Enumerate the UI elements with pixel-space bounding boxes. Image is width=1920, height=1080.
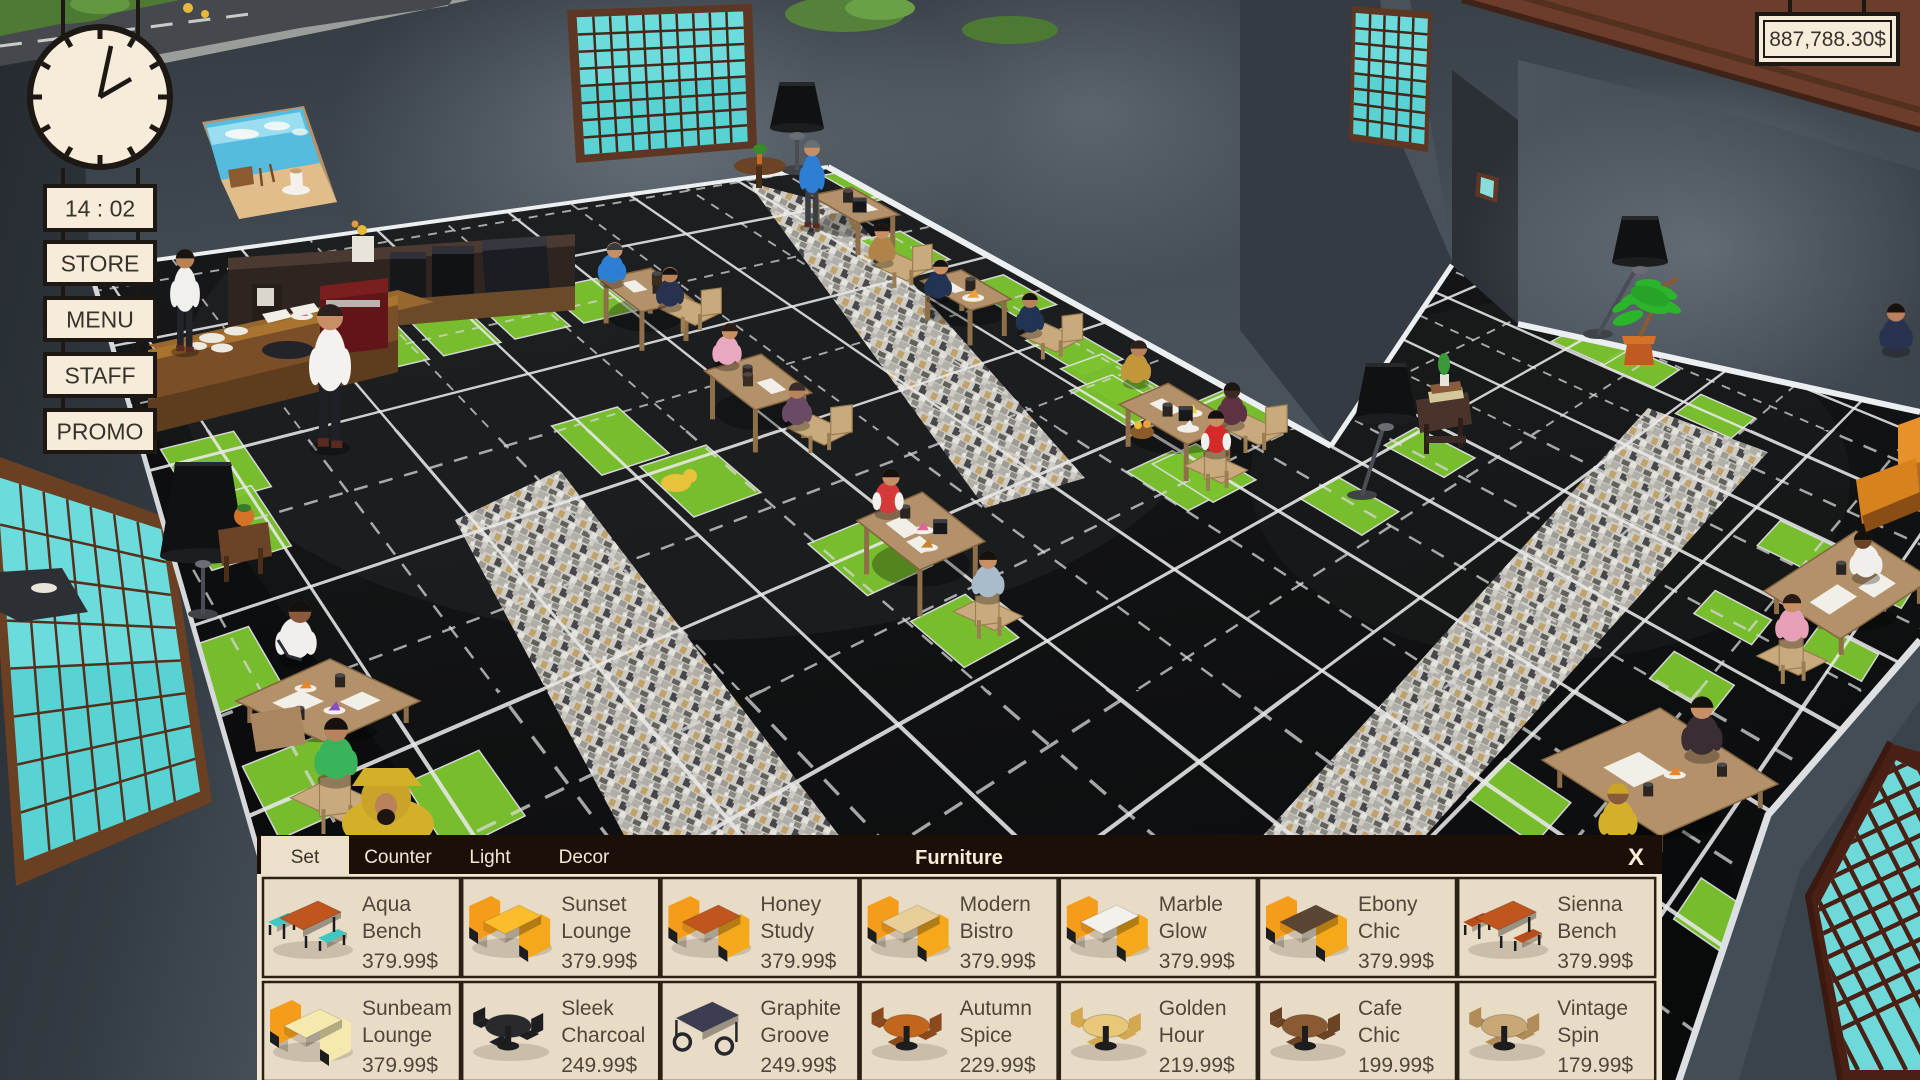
- svg-text:179.99$: 179.99$: [1557, 1054, 1633, 1077]
- svg-text:Vintage: Vintage: [1557, 997, 1628, 1020]
- svg-text:Spice: Spice: [960, 1024, 1013, 1047]
- svg-text:379.99$: 379.99$: [561, 950, 637, 973]
- svg-text:Groove: Groove: [760, 1024, 829, 1047]
- svg-text:379.99$: 379.99$: [1557, 950, 1633, 973]
- svg-text:Marble: Marble: [1159, 893, 1223, 916]
- svg-text:Spin: Spin: [1557, 1024, 1599, 1047]
- svg-text:Bistro: Bistro: [960, 920, 1014, 943]
- svg-text:379.99$: 379.99$: [362, 1054, 438, 1077]
- svg-text:Chic: Chic: [1358, 1024, 1400, 1047]
- svg-text:Cafe: Cafe: [1358, 997, 1402, 1020]
- svg-text:Sunset: Sunset: [561, 893, 627, 916]
- svg-text:Autumn: Autumn: [960, 997, 1032, 1020]
- svg-text:Decor: Decor: [559, 847, 610, 868]
- svg-text:Set: Set: [291, 847, 320, 868]
- svg-text:219.99$: 219.99$: [1159, 1054, 1235, 1077]
- svg-text:Glow: Glow: [1159, 920, 1208, 943]
- svg-text:Sienna: Sienna: [1557, 893, 1623, 916]
- svg-text:Study: Study: [760, 920, 814, 943]
- svg-text:X: X: [1628, 844, 1644, 871]
- svg-text:379.99$: 379.99$: [1159, 950, 1235, 973]
- svg-text:Modern: Modern: [960, 893, 1031, 916]
- svg-text:Sleek: Sleek: [561, 997, 614, 1020]
- svg-text:379.99$: 379.99$: [960, 950, 1036, 973]
- svg-text:379.99$: 379.99$: [760, 950, 836, 973]
- svg-text:14 : 02: 14 : 02: [65, 195, 135, 221]
- svg-text:STORE: STORE: [61, 250, 140, 276]
- svg-text:Hour: Hour: [1159, 1024, 1205, 1047]
- svg-text:379.99$: 379.99$: [362, 950, 438, 973]
- svg-text:Ebony: Ebony: [1358, 893, 1418, 916]
- svg-text:Counter: Counter: [364, 847, 432, 868]
- svg-text:249.99$: 249.99$: [561, 1054, 637, 1077]
- svg-text:Chic: Chic: [1358, 920, 1400, 943]
- svg-text:PROMO: PROMO: [57, 418, 144, 444]
- svg-text:199.99$: 199.99$: [1358, 1054, 1434, 1077]
- svg-text:Golden: Golden: [1159, 997, 1227, 1020]
- svg-text:Bench: Bench: [362, 920, 422, 943]
- svg-text:Bench: Bench: [1557, 920, 1617, 943]
- svg-text:Light: Light: [469, 847, 511, 868]
- svg-text:Aqua: Aqua: [362, 893, 411, 916]
- svg-text:Graphite: Graphite: [760, 997, 841, 1020]
- svg-text:Sunbeam: Sunbeam: [362, 997, 452, 1020]
- svg-text:Honey: Honey: [760, 893, 821, 916]
- svg-text:MENU: MENU: [66, 306, 134, 332]
- svg-text:STAFF: STAFF: [64, 362, 135, 388]
- svg-text:Lounge: Lounge: [561, 920, 631, 943]
- svg-text:379.99$: 379.99$: [1358, 950, 1434, 973]
- svg-text:Charcoal: Charcoal: [561, 1024, 645, 1047]
- svg-text:249.99$: 249.99$: [760, 1054, 836, 1077]
- svg-text:Furniture: Furniture: [915, 847, 1003, 869]
- svg-text:Lounge: Lounge: [362, 1024, 432, 1047]
- svg-text:887,788.30$: 887,788.30$: [1769, 28, 1886, 51]
- svg-text:229.99$: 229.99$: [960, 1054, 1036, 1077]
